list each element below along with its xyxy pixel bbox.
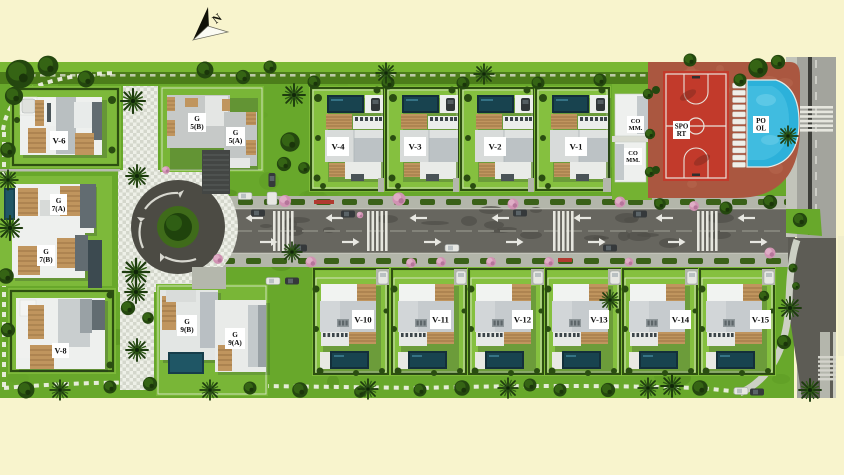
svg-text:CO: CO <box>628 150 638 157</box>
svg-text:MM.: MM. <box>626 157 640 164</box>
svg-text:V-12: V-12 <box>514 315 532 325</box>
svg-text:G: G <box>233 129 239 137</box>
svg-text:G: G <box>56 197 62 205</box>
svg-text:G: G <box>194 115 200 123</box>
svg-text:G: G <box>232 331 238 339</box>
svg-text:V-6: V-6 <box>52 136 66 146</box>
svg-text:G: G <box>184 318 190 326</box>
svg-text:V-13: V-13 <box>590 315 608 325</box>
svg-text:7(A): 7(A) <box>52 205 66 213</box>
svg-text:V-3: V-3 <box>408 142 422 152</box>
svg-text:V-8: V-8 <box>54 346 66 355</box>
svg-text:V-14: V-14 <box>672 315 690 325</box>
svg-text:G: G <box>43 248 49 256</box>
svg-text:V-4: V-4 <box>331 142 345 152</box>
svg-text:V-1: V-1 <box>569 142 582 152</box>
svg-text:CO: CO <box>631 118 641 125</box>
svg-text:V-10: V-10 <box>354 315 372 325</box>
svg-text:9(A): 9(A) <box>228 339 242 347</box>
svg-text:7(B): 7(B) <box>39 256 53 264</box>
svg-text:9(B): 9(B) <box>180 326 194 334</box>
svg-text:OL: OL <box>756 125 766 133</box>
svg-text:MM.: MM. <box>629 125 643 132</box>
svg-text:5(B): 5(B) <box>190 123 204 131</box>
svg-text:V-15: V-15 <box>752 315 770 325</box>
svg-text:5(A): 5(A) <box>229 137 243 145</box>
svg-text:V-2: V-2 <box>488 142 502 152</box>
svg-text:RT: RT <box>677 130 687 138</box>
svg-text:V-11: V-11 <box>432 315 449 325</box>
